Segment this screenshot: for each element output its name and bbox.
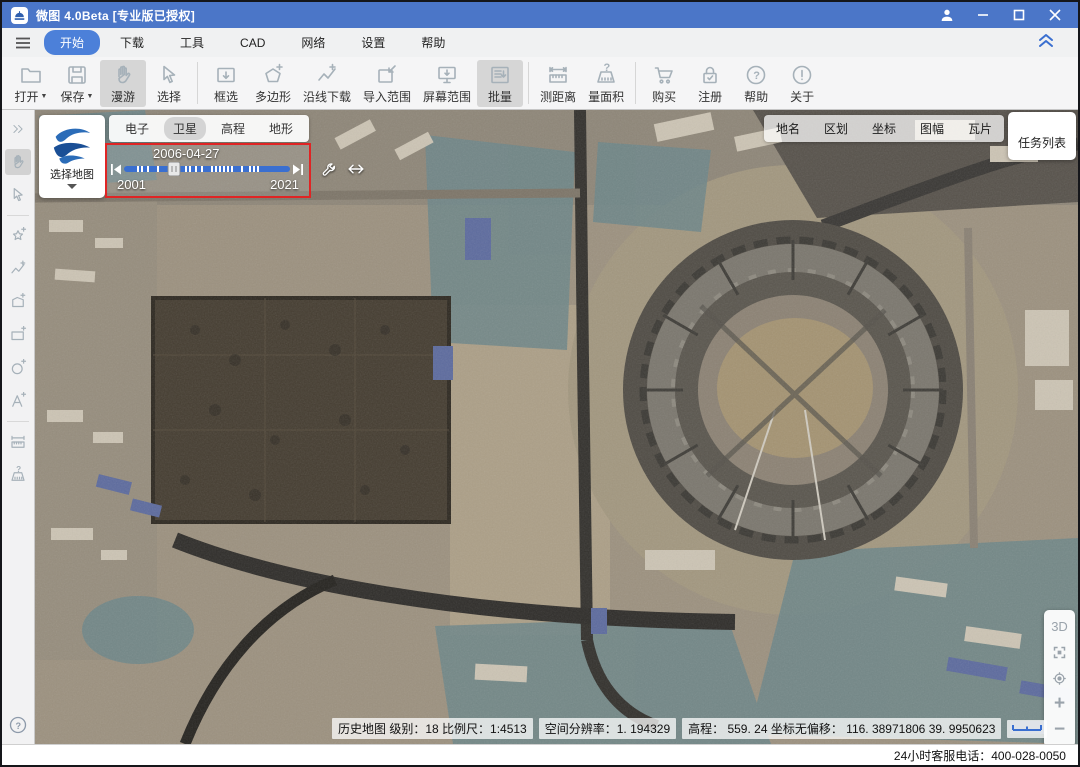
mode-3d-button[interactable]: 3D [1044,616,1075,638]
minimize-button[interactable] [968,4,998,26]
batch-list-icon [488,63,512,87]
hand-icon [111,63,135,87]
layer-tabs-bar: 电子 卫星 高程 地形 [109,115,309,142]
coordinates-button[interactable]: 坐标 [866,117,902,140]
menu-item-help[interactable]: 帮助 [405,30,461,55]
map-view-controls: 3D + − [1044,610,1075,744]
sidebar-separator [7,215,29,216]
timeline-current-date: 2006-04-27 [153,146,305,161]
dropdown-caret-icon: ▼ [41,93,48,100]
pan-tool-button[interactable]: 漫游 [100,60,146,107]
app-logo-icon [11,7,28,24]
task-list-button[interactable]: 任务列表 [1008,112,1076,160]
select-map-label: 选择地图 [50,166,94,182]
register-button[interactable]: 注册 [687,60,733,107]
swap-arrows-icon[interactable] [347,162,365,176]
menu-bar: 开始 下载 工具 CAD 网络 设置 帮助 [2,28,1078,57]
screen-extent-button[interactable]: 屏幕范围 [417,60,477,107]
svg-text:?: ? [16,721,22,731]
scalebar-graphic [1007,720,1047,738]
map-info-toolbar: 地名 区划 坐标 图幅 瓦片 [764,115,1004,142]
map-sheet-button[interactable]: 图幅 [914,117,950,140]
task-list-label: 任务列表 [1018,134,1066,151]
zoom-out-button[interactable]: − [1044,719,1075,741]
timeline-prev-icon[interactable] [111,164,121,175]
locate-icon[interactable] [1044,667,1075,689]
polygon-icon [261,63,285,87]
menu-item-start[interactable]: 开始 [44,30,100,55]
history-timeline-panel: 2006-04-27 [105,143,311,198]
satellite-imagery [35,110,1078,744]
measure-distance-button[interactable]: 测距离 [534,60,582,107]
wrench-icon[interactable] [321,162,337,178]
sidebar-separator [7,421,29,422]
tab-satellite-map[interactable]: 卫星 [164,117,206,140]
map-canvas[interactable]: 选择地图 电子 卫星 高程 地形 2006-04-27 [35,110,1078,744]
monitor-download-icon [435,63,459,87]
box-download-icon [214,63,238,87]
timeline-slider[interactable] [124,162,290,176]
menu-item-cad[interactable]: CAD [224,32,281,54]
sidebar-measure-distance-tool[interactable] [5,429,31,455]
cursor-arrow-icon [157,63,181,87]
batch-button[interactable]: 批量 [477,60,523,107]
timeline-end-year: 2021 [270,177,299,192]
toolbar-separator [197,62,198,104]
polyline-icon [315,63,339,87]
menu-item-network[interactable]: 网络 [285,30,341,55]
purchase-button[interactable]: 购买 [641,60,687,107]
draw-circle-tool[interactable] [5,355,31,381]
folder-icon [19,63,43,87]
select-tool-button[interactable]: 选择 [146,60,192,107]
districts-button[interactable]: 区划 [818,117,854,140]
select-map-panel[interactable]: 选择地图 [39,115,105,198]
expand-panel-icon[interactable] [5,116,31,142]
lock-icon [698,63,722,87]
hamburger-menu-icon[interactable] [12,33,34,53]
footer-bar: 24小时客服电话：400-028-0050 [2,744,1078,765]
sidebar-measure-area-tool[interactable]: ? [5,462,31,488]
fullscreen-icon[interactable] [1044,642,1075,664]
import-extent-button[interactable]: 导入范围 [357,60,417,107]
place-names-button[interactable]: 地名 [770,117,806,140]
sidebar-pan-tool[interactable] [5,149,31,175]
menu-item-settings[interactable]: 设置 [345,30,401,55]
sidebar-select-tool[interactable] [5,182,31,208]
save-button[interactable]: 保存▼ [54,60,100,107]
status-elevation-coordinates: 高程： 559. 24 坐标无偏移： 116. 38971806 39. 995… [682,718,1001,739]
measure-area-button[interactable]: ? 量面积 [582,60,630,107]
tab-vector-map[interactable]: 电子 [116,117,158,140]
box-select-download-button[interactable]: 框选 [203,60,249,107]
sidebar-help-icon[interactable]: ? [5,712,31,738]
tab-terrain-map[interactable]: 地形 [260,117,302,140]
timeline-start-year: 2001 [117,177,146,192]
left-tool-sidebar: ? ? [2,110,35,744]
timeline-extra-tools [321,162,365,178]
dropdown-caret-icon: ▼ [87,93,94,100]
tiles-button[interactable]: 瓦片 [962,117,998,140]
title-bar: 微图 4.0Beta [专业版已授权] [2,2,1078,28]
menu-item-download[interactable]: 下载 [104,30,160,55]
collapse-ribbon-icon[interactable] [1038,33,1068,53]
ribbon-toolbar: 打开▼ 保存▼ 漫游 选择 框选 多边形 沿线下载 导入范围 [2,57,1078,110]
status-level-scale: 历史地图 级别：18 比例尺：1:4513 [332,718,533,739]
along-line-download-button[interactable]: 沿线下载 [297,60,357,107]
close-button[interactable] [1040,4,1070,26]
draw-rectangle-tool[interactable] [5,322,31,348]
menu-item-tools[interactable]: 工具 [164,30,220,55]
ruler-distance-icon [546,63,570,87]
zoom-in-button[interactable]: + [1044,693,1075,715]
about-button[interactable]: 关于 [779,60,825,107]
ruler-area-icon: ? [594,63,618,87]
draw-freeform-tool[interactable] [5,223,31,249]
polygon-download-button[interactable]: 多边形 [249,60,297,107]
save-icon [65,63,89,87]
user-account-icon[interactable] [932,4,962,26]
add-text-tool[interactable] [5,388,31,414]
exclamation-circle-icon [790,63,814,87]
window-title: 微图 4.0Beta [专业版已授权] [36,7,195,24]
tab-elevation-map[interactable]: 高程 [212,117,254,140]
draw-polygon-tool[interactable] [5,289,31,315]
svg-text:?: ? [16,466,21,474]
svg-text:?: ? [753,69,760,81]
toolbar-separator [528,62,529,104]
svg-text:?: ? [604,63,611,74]
open-button[interactable]: 打开▼ [8,60,54,107]
app-window: 微图 4.0Beta [专业版已授权] 开始 下载 工具 CAD 网络 设置 帮… [0,0,1080,767]
status-resolution: 空间分辨率：1. 194329 [539,718,676,739]
toolbar-separator [635,62,636,104]
map-status-bar: 历史地图 级别：18 比例尺：1:4513 空间分辨率：1. 194329 高程… [332,718,1047,739]
shopping-cart-icon [652,63,676,87]
service-phone: 24小时客服电话：400-028-0050 [894,747,1066,764]
help-button[interactable]: ? 帮助 [733,60,779,107]
question-circle-icon: ? [744,63,768,87]
timeline-slider-handle[interactable] [168,162,180,176]
chevron-down-icon [67,184,77,189]
map-provider-logo-icon [50,124,94,164]
import-icon [375,63,399,87]
draw-polyline-tool[interactable] [5,256,31,282]
maximize-button[interactable] [1004,4,1034,26]
timeline-next-icon[interactable] [293,164,303,175]
